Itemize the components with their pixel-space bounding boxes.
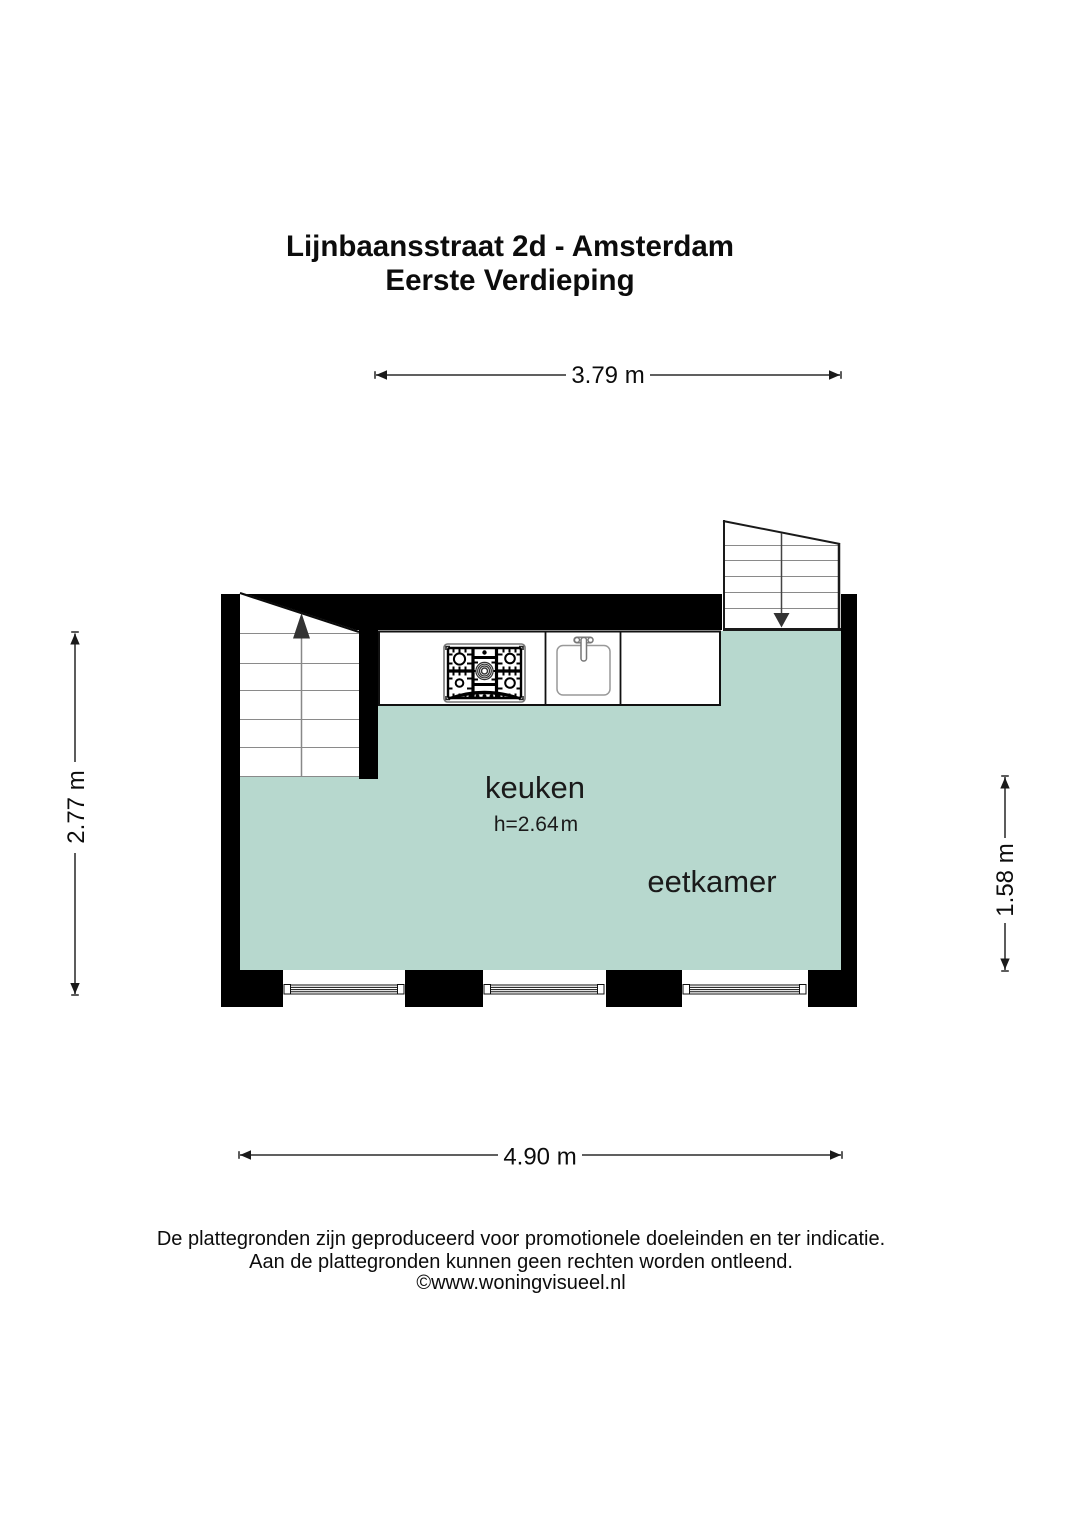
svg-text:©www.woningvisueel.nl: ©www.woningvisueel.nl [416,1272,625,1294]
svg-text:Eerste Verdieping: Eerste Verdieping [385,264,634,297]
svg-text:4.90 m: 4.90 m [503,1144,576,1171]
svg-text:Lijnbaansstraat 2d - Amsterdam: Lijnbaansstraat 2d - Amsterdam [286,230,734,263]
svg-text:keuken: keuken [485,770,585,805]
svg-text:h=2.64m: h=2.64m [494,813,578,836]
svg-text:2.77 m: 2.77 m [63,770,90,843]
svg-text:Aan de plattegronden kunnen ge: Aan de plattegronden kunnen geen rechten… [249,1251,793,1273]
svg-text:1.58 m: 1.58 m [992,843,1019,916]
svg-text:eetkamer: eetkamer [647,864,776,899]
svg-text:De plattegronden zijn geproduc: De plattegronden zijn geproduceerd voor … [157,1228,885,1250]
svg-text:3.79 m: 3.79 m [571,362,644,389]
